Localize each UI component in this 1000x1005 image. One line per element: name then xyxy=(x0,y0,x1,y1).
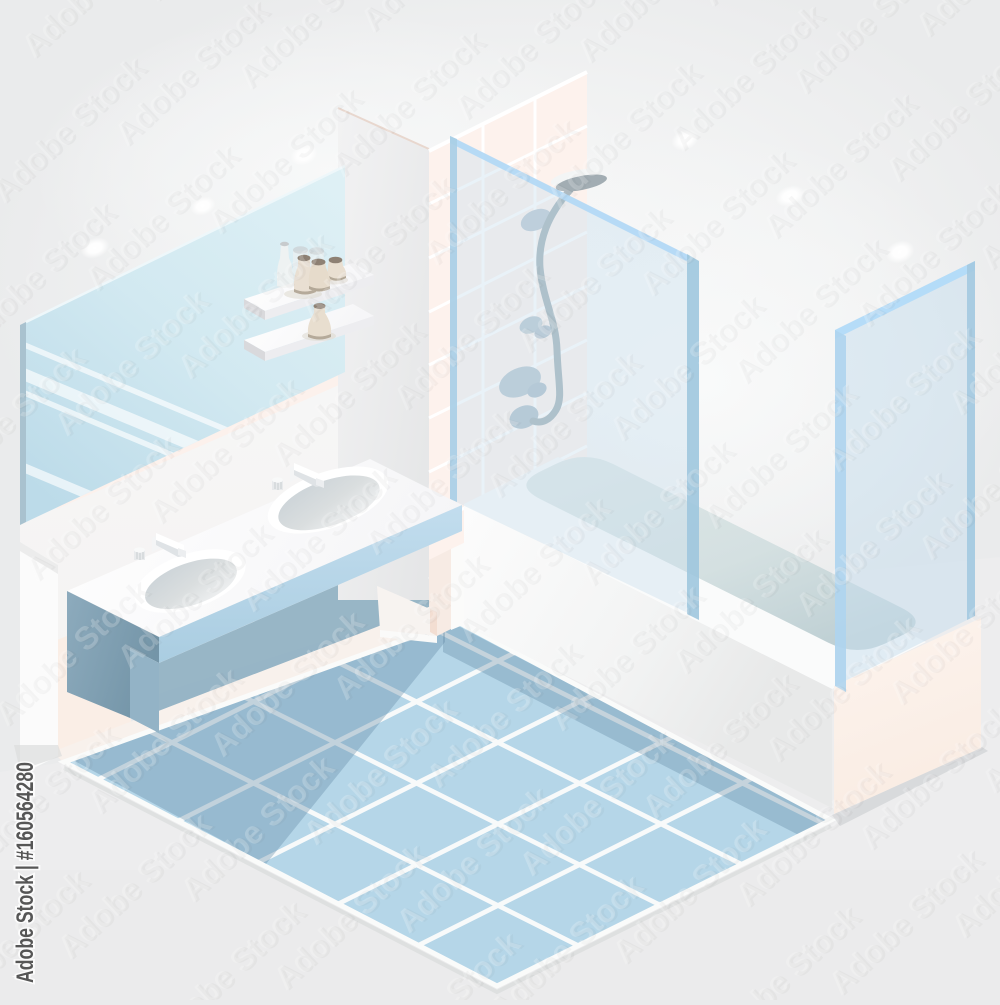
svg-text:Adobe Stock | #160564280: Adobe Stock | #160564280 xyxy=(12,762,39,983)
